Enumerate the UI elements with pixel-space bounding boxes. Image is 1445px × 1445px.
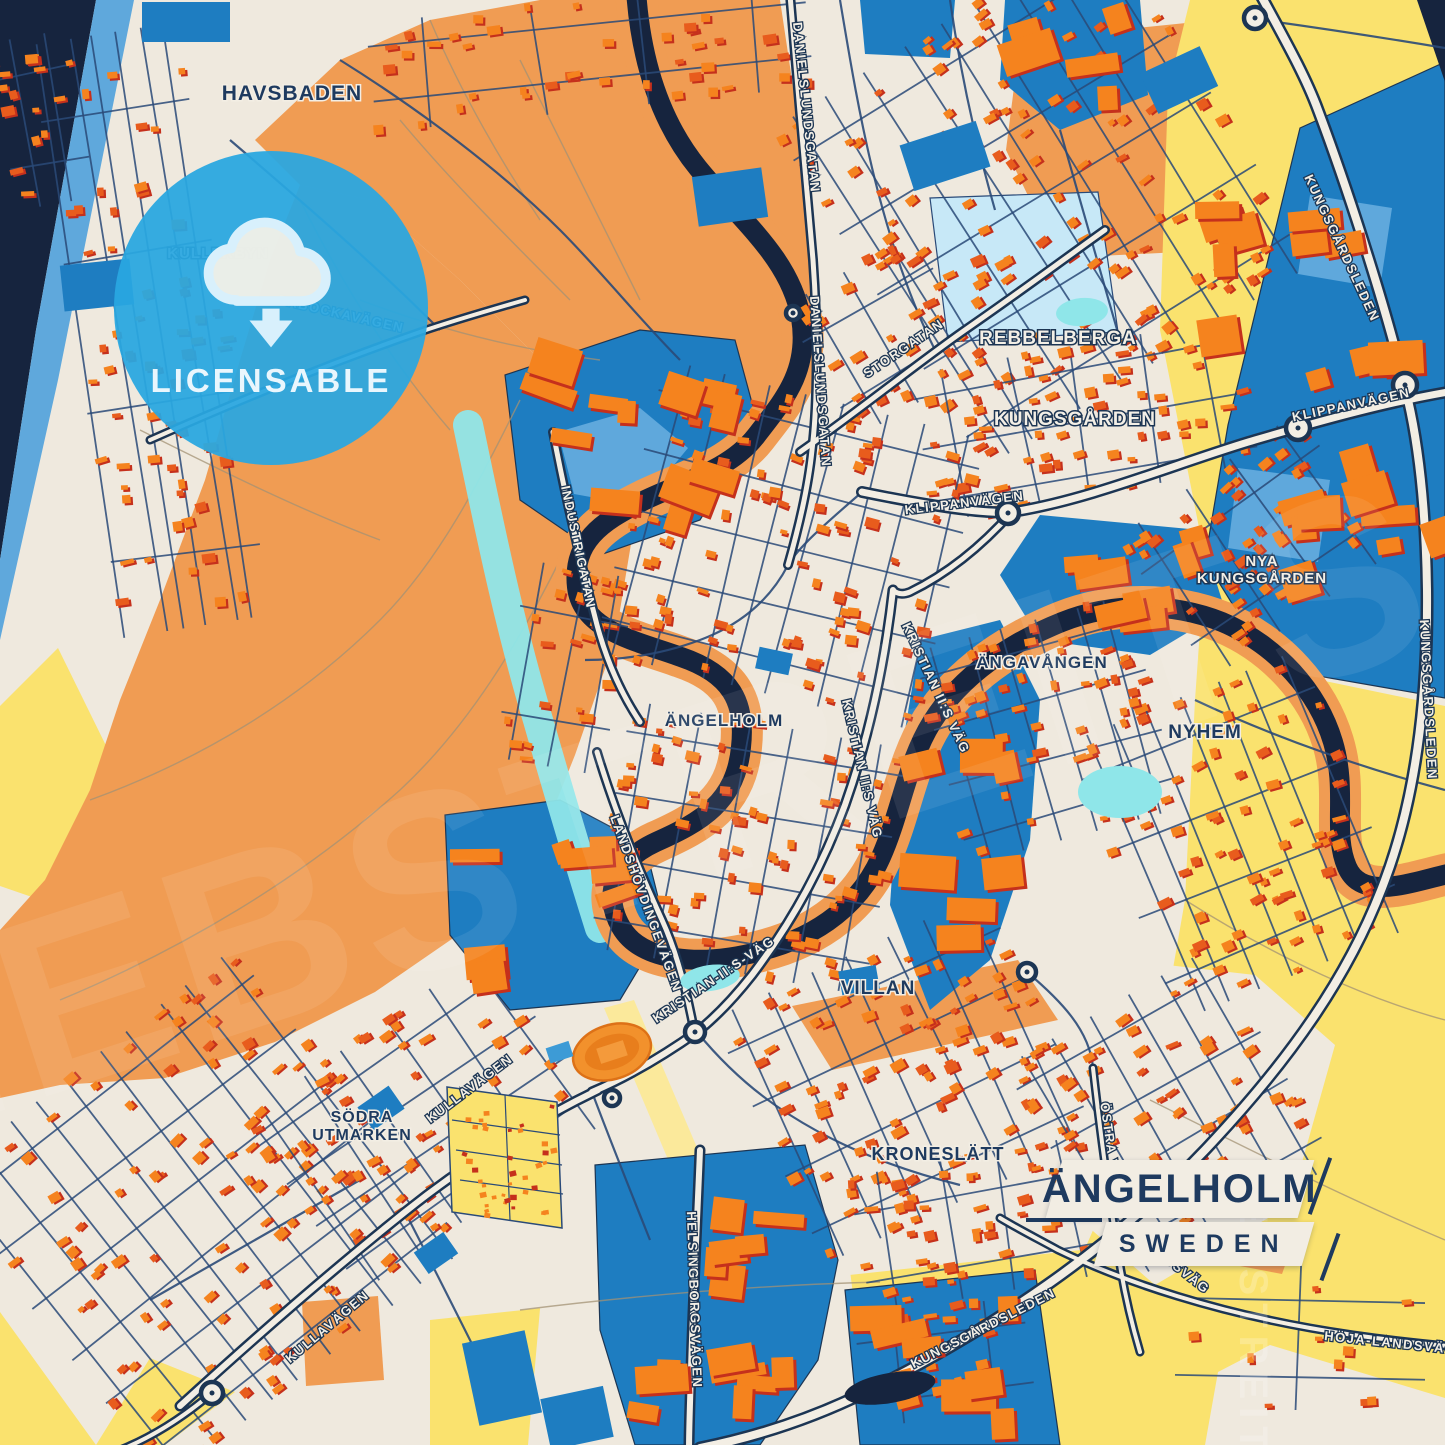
area-label: REBBELBERGA	[979, 328, 1137, 349]
house	[624, 605, 639, 617]
area-label: HAVSBADEN	[222, 82, 362, 105]
badge-label: LICENSABLE	[151, 362, 392, 400]
area-label: KRONESLÄTT	[872, 1144, 1005, 1164]
large-building	[589, 487, 643, 518]
large-building	[964, 1367, 1007, 1403]
area-label: KUNGSGÅRDEN	[994, 409, 1156, 430]
cloud-download-icon	[192, 216, 350, 356]
area-label: VILLAN	[841, 978, 916, 999]
city-title: ÄNGELHOLM	[1042, 1167, 1318, 1212]
house	[540, 641, 556, 650]
large-building	[1195, 201, 1242, 222]
area-label: UTMARKEN	[312, 1127, 412, 1144]
large-building	[735, 1234, 769, 1259]
large-building	[1097, 85, 1121, 113]
map-poster: DANIELSLUNDSGATANDANIELSLUNDSGATANSTORGA…	[0, 0, 1445, 1445]
house	[858, 448, 874, 461]
large-building	[946, 897, 999, 925]
large-building	[617, 400, 639, 427]
licensable-badge: LICENSABLE	[114, 151, 428, 465]
large-building	[732, 1385, 756, 1422]
country-subtitle-bar: SWEDEN	[1094, 1222, 1315, 1266]
allotment-gardens	[447, 1087, 563, 1228]
large-building	[635, 1363, 693, 1397]
map-title-banner: ÄNGELHOLM SWEDEN	[1036, 1148, 1336, 1288]
city-title-bar: ÄNGELHOLM	[1046, 1160, 1315, 1218]
large-building	[771, 1357, 797, 1391]
large-building	[1196, 314, 1245, 360]
area-label: SÖDRA	[331, 1107, 394, 1126]
large-building	[981, 854, 1027, 893]
large-building	[990, 1408, 1018, 1443]
large-building	[1213, 243, 1239, 280]
large-building	[710, 1196, 748, 1236]
house	[768, 487, 783, 501]
house	[427, 42, 443, 50]
country-subtitle: SWEDEN	[1119, 1230, 1289, 1259]
banner-left-line	[1026, 1218, 1102, 1222]
large-building	[936, 924, 984, 954]
